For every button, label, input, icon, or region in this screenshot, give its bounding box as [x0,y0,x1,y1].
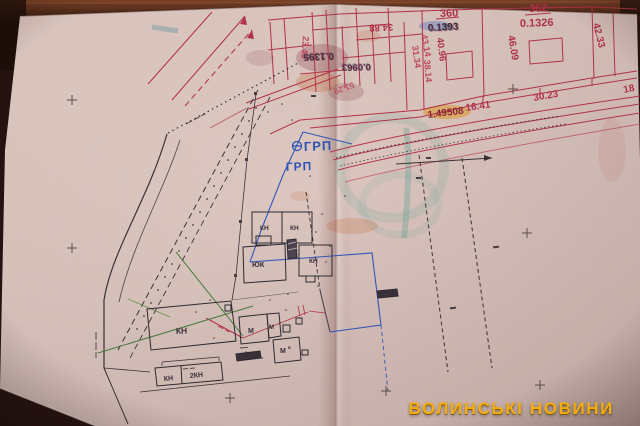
photo-vignette [0,0,640,426]
watermark: ВОЛИНСЬКІ НОВИНИ [409,399,615,419]
photo-of-cadastral-plan: 360 0.1393 362 0.1326 46.09 42.33 40.96 … [0,0,640,426]
plan-drawing: 360 0.1393 362 0.1326 46.09 42.33 40.96 … [0,0,640,426]
